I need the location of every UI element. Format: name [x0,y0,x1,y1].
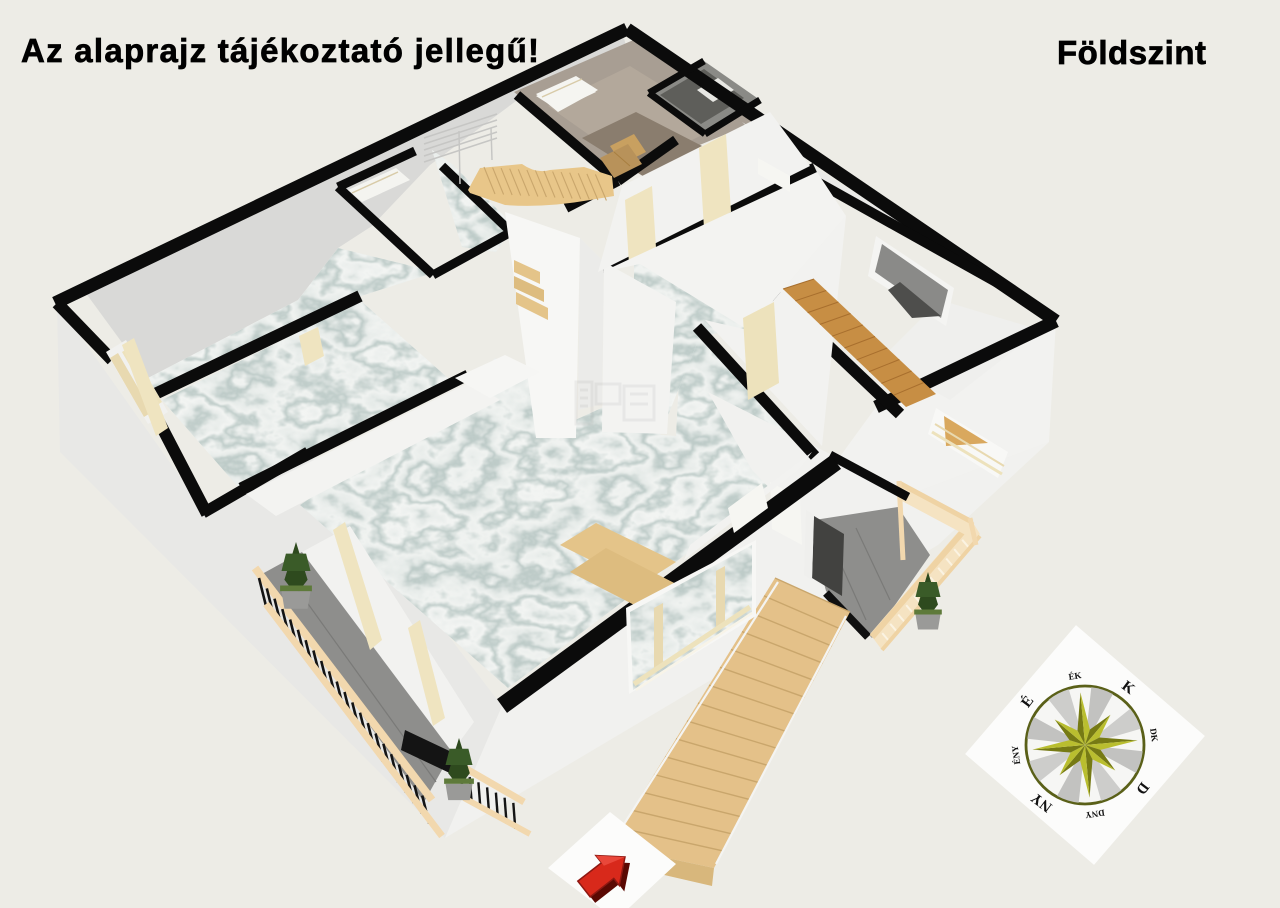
svg-text:Földszint: Földszint [1057,34,1206,71]
svg-text:ÉK: ÉK [1068,670,1082,682]
svg-text:Az alaprajz tájékoztató jelleg: Az alaprajz tájékoztató jellegű! [21,32,539,69]
svg-text:DK: DK [1148,728,1160,743]
